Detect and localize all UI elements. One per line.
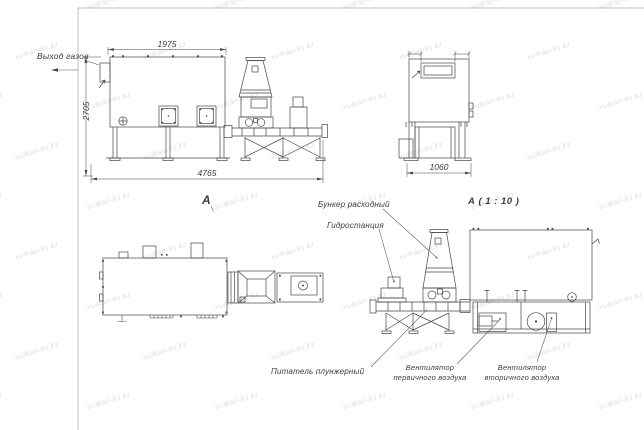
plan-view — [100, 243, 324, 322]
valve — [119, 117, 127, 125]
hatch-doors — [159, 106, 216, 126]
plunger-feeder-label: Питатель плунжерный — [271, 367, 364, 376]
gas-outlet-label: Выход газов — [37, 51, 89, 61]
gas-outlet-stub — [99, 63, 110, 88]
plan-bottom-details — [118, 315, 218, 322]
feeder-truss-front — [241, 137, 325, 161]
view-a-marker: А — [202, 193, 211, 207]
gas-flow-arrow — [51, 68, 58, 72]
drawing-sheet: { "meta": { "type": "engineering-drawing… — [0, 0, 644, 430]
side-view — [399, 51, 473, 161]
plan-hopper — [238, 271, 275, 303]
detail-truss — [382, 313, 454, 333]
sheet-canvas: vulkan-kv.kzvulkan-kv.kzvulkan-kv.kzvulk… — [0, 0, 644, 430]
detail-view — [370, 228, 600, 334]
detail-hopper — [423, 230, 456, 303]
detail-view-title: А ( 1 : 10 ) — [468, 196, 519, 207]
hopper-label: Бункер расходный — [318, 200, 390, 209]
dim-front-length-total: 4765 — [191, 168, 223, 178]
primary-fan-label: Вентилятор первичного воздуха — [392, 363, 468, 383]
detail-body — [470, 228, 600, 302]
plan-fan-box — [277, 273, 323, 302]
furnace-hopper-front — [239, 58, 273, 129]
plan-connector — [228, 272, 238, 303]
leader-lines — [51, 60, 552, 367]
dimension-lines — [83, 47, 471, 183]
side-top-ticks — [408, 51, 471, 62]
dim-front-height: 2705 — [81, 95, 91, 127]
plan-bolts — [102, 254, 227, 317]
plunger-feeder — [370, 300, 470, 314]
secondary-fan-label: Вентилятор вторичного воздуха — [482, 363, 562, 383]
hydraulic-station-label: Гидростанция — [327, 221, 384, 230]
dim-side-width: 1060 — [423, 162, 455, 172]
base-frame — [473, 302, 590, 333]
dim-front-width-top: 1975 — [151, 39, 183, 49]
hydraulic-station — [378, 277, 406, 302]
side-legs — [404, 122, 471, 161]
body-legs — [106, 127, 230, 161]
front-view — [99, 55, 328, 160]
